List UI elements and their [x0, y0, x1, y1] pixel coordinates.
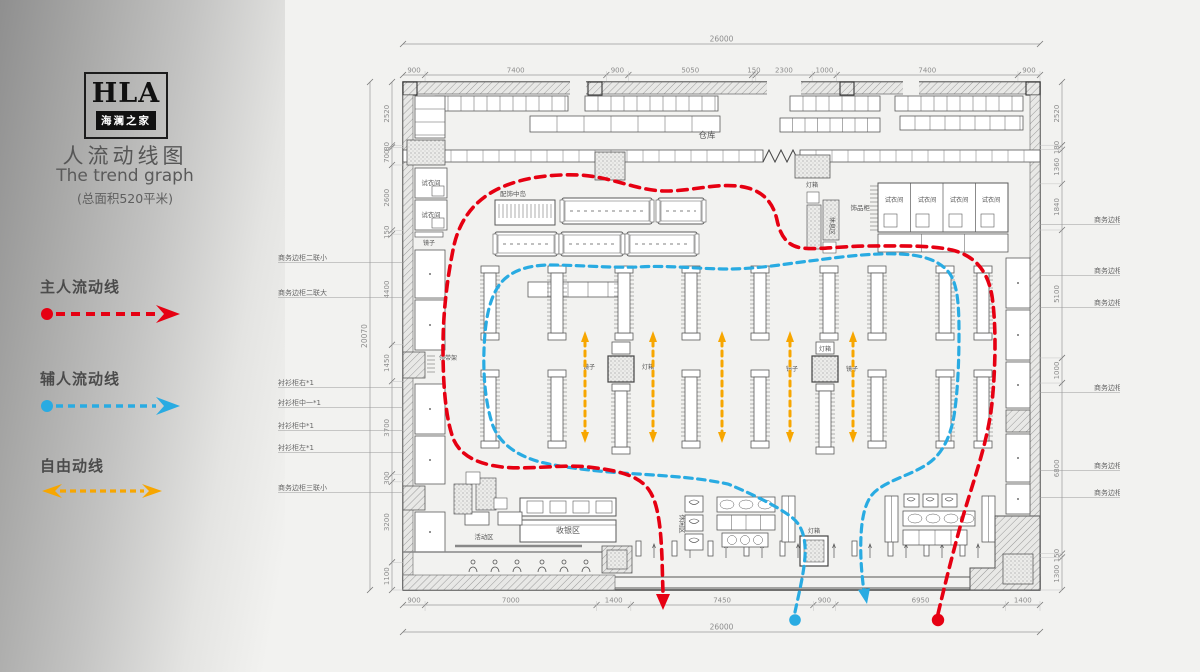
page: { "sidebar": { "logo_main": "HLA", "logo…: [0, 0, 1200, 672]
legend-main-label: 主人流动线: [40, 276, 120, 297]
svg-text:试衣间: 试衣间: [918, 196, 937, 204]
svg-text:收银区: 收银区: [556, 525, 580, 535]
svg-text:灯箱: 灯箱: [806, 181, 818, 189]
svg-text:26000: 26000: [710, 623, 734, 632]
svg-text:26000: 26000: [710, 35, 734, 44]
svg-text:150: 150: [383, 226, 391, 239]
svg-text:900: 900: [611, 67, 624, 75]
svg-text:试衣间: 试衣间: [982, 196, 1001, 204]
legend-aux-label: 辅人流动线: [40, 368, 120, 389]
svg-text:2520: 2520: [1053, 105, 1061, 123]
svg-text:5050: 5050: [681, 67, 699, 75]
svg-text:商务边柜二联大: 商务边柜二联大: [1094, 266, 1120, 275]
svg-text:试衣间: 试衣间: [422, 178, 441, 187]
svg-text:灯箱: 灯箱: [819, 345, 831, 353]
svg-text:700: 700: [383, 150, 391, 163]
svg-text:7400: 7400: [918, 67, 936, 75]
area-note: (总面积520平米): [0, 188, 250, 207]
svg-text:饰品柜: 饰品柜: [851, 203, 871, 212]
svg-text:5100: 5100: [1053, 285, 1061, 303]
svg-text:商务边柜二联大: 商务边柜二联大: [278, 288, 327, 297]
svg-text:6800: 6800: [1053, 459, 1061, 477]
svg-text:1000: 1000: [1053, 362, 1061, 380]
svg-text:商务边柜三联小: 商务边柜三联小: [278, 483, 327, 492]
svg-text:3700: 3700: [383, 419, 391, 437]
floor-plan-svg: 2600090074009005050150230010007400900900…: [270, 28, 1120, 644]
svg-text:休息区: 休息区: [828, 217, 836, 235]
svg-text:衬衫柜右*1: 衬衫柜右*1: [278, 378, 314, 387]
svg-text:900: 900: [818, 597, 831, 605]
legend-main-arrow-icon: [38, 302, 188, 326]
svg-text:商务边柜二联小: 商务边柜二联小: [278, 253, 327, 262]
svg-text:1840: 1840: [1053, 198, 1061, 216]
svg-text:衬衫柜中*1: 衬衫柜中*1: [278, 421, 314, 430]
svg-text:1400: 1400: [605, 597, 623, 605]
svg-text:镜子: 镜子: [786, 365, 798, 373]
svg-text:试衣间: 试衣间: [950, 196, 969, 204]
hla-logo: HLA 海澜之家: [84, 72, 168, 139]
svg-text:7450: 7450: [713, 597, 731, 605]
legend-aux-arrow-icon: [38, 394, 188, 418]
svg-text:7400: 7400: [507, 67, 525, 75]
legend-free-arrow-icon: [38, 480, 188, 502]
svg-text:3200: 3200: [383, 513, 391, 531]
svg-text:2520: 2520: [383, 105, 391, 123]
svg-text:180: 180: [1053, 141, 1061, 154]
svg-text:商务边柜二联小: 商务边柜二联小: [1094, 383, 1120, 392]
svg-text:900: 900: [407, 597, 420, 605]
svg-text:2600: 2600: [383, 189, 391, 207]
svg-text:商务边柜二联小: 商务边柜二联小: [1094, 488, 1120, 497]
svg-text:商务边柜三联小: 商务边柜三联小: [1094, 461, 1120, 470]
logo-subtext: 海澜之家: [96, 111, 156, 130]
main-end-arrow: [656, 594, 670, 610]
svg-text:4400: 4400: [383, 281, 391, 299]
svg-text:300: 300: [383, 471, 391, 484]
svg-text:900: 900: [1022, 67, 1035, 75]
svg-text:1100: 1100: [383, 567, 391, 585]
legend-free-label: 自由动线: [40, 455, 104, 476]
svg-text:休闲区: 休闲区: [678, 515, 687, 534]
svg-text:商务边柜二联大: 商务边柜二联大: [1094, 298, 1120, 307]
page-subtitle-en: The trend graph: [0, 166, 250, 186]
svg-text:1360: 1360: [1053, 158, 1061, 176]
svg-text:1000: 1000: [815, 67, 833, 75]
svg-text:试衣间: 试衣间: [885, 196, 904, 204]
aux-start-dot: [789, 614, 801, 626]
main-start-dot: [932, 614, 944, 626]
svg-text:150: 150: [747, 67, 760, 75]
svg-text:6950: 6950: [912, 597, 930, 605]
svg-text:7000: 7000: [502, 597, 520, 605]
svg-text:1450: 1450: [383, 354, 391, 372]
svg-text:配饰中岛: 配饰中岛: [500, 189, 526, 198]
svg-text:20070: 20070: [360, 324, 369, 348]
svg-text:900: 900: [407, 67, 420, 75]
aux-end-arrow: [858, 588, 870, 604]
sidebar: HLA 海澜之家 人流动线图 The trend graph (总面积520平米…: [0, 0, 285, 672]
svg-text:衬衫柜中一*1: 衬衫柜中一*1: [278, 398, 321, 407]
svg-text:灯箱: 灯箱: [808, 527, 820, 535]
floor-plan: 2600090074009005050150230010007400900900…: [270, 28, 1120, 644]
svg-text:衬衫柜左*1: 衬衫柜左*1: [278, 443, 314, 452]
svg-text:商务边柜三联小: 商务边柜三联小: [1094, 215, 1120, 224]
svg-text:150: 150: [1053, 549, 1061, 562]
logo-text: HLA: [86, 80, 166, 108]
svg-text:仓库: 仓库: [698, 130, 716, 141]
svg-text:1400: 1400: [1014, 597, 1032, 605]
svg-text:2300: 2300: [775, 67, 793, 75]
svg-text:镜子: 镜子: [423, 239, 435, 247]
svg-text:试衣间: 试衣间: [422, 210, 441, 219]
svg-text:活动区: 活动区: [475, 532, 494, 541]
svg-text:1300: 1300: [1053, 565, 1061, 583]
